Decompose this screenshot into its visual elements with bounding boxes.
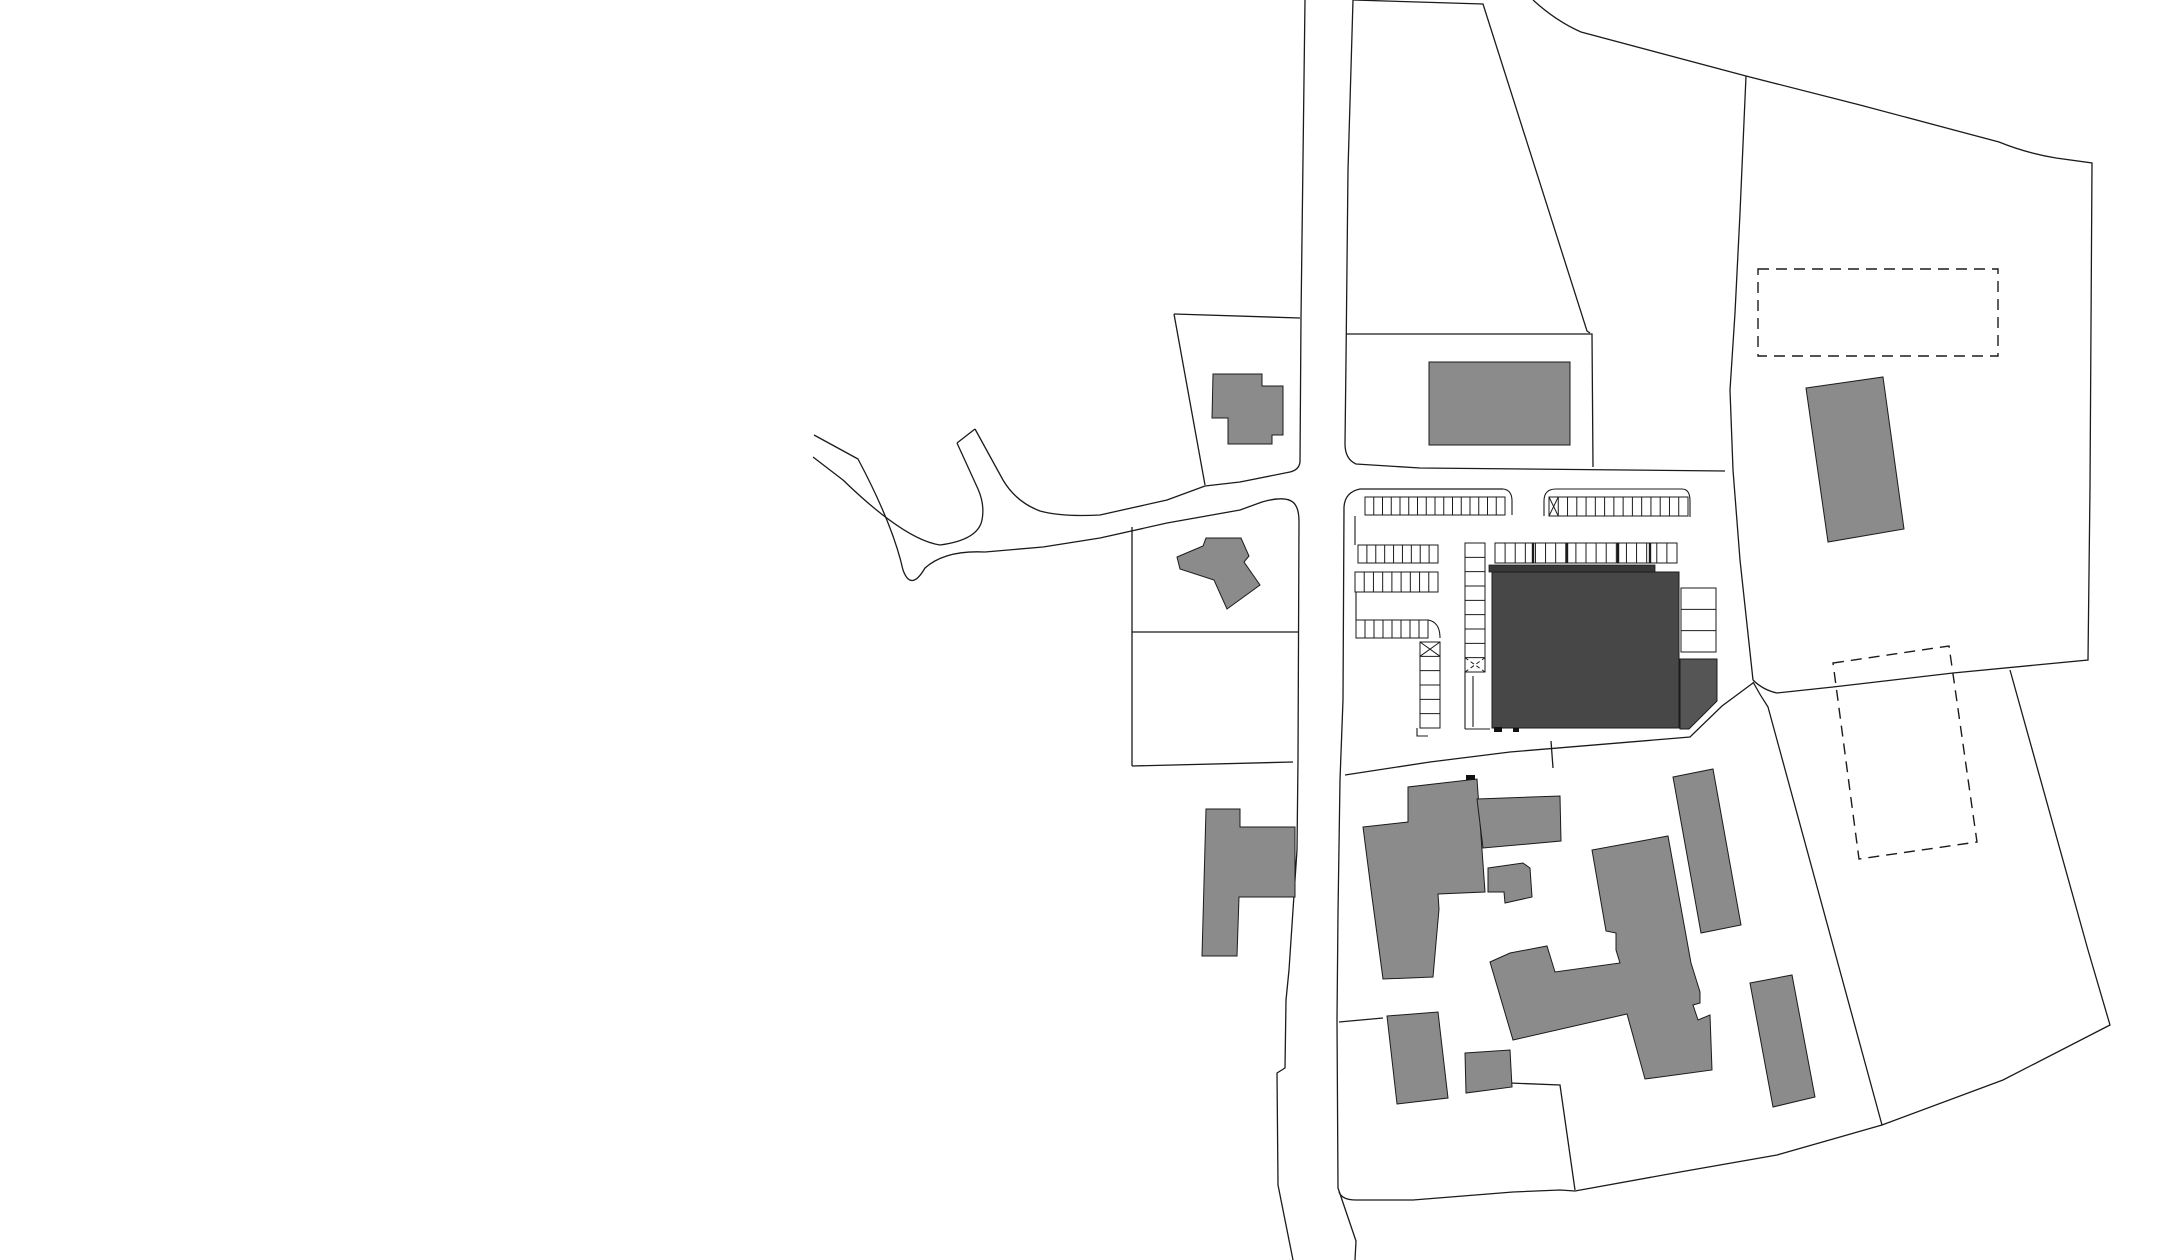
stall-row-west-3 — [1355, 572, 1438, 592]
layer-project-building — [1466, 565, 1717, 780]
project-building-roofband — [1489, 565, 1655, 572]
entrance-mark-1 — [1494, 727, 1502, 732]
parcel-northwest-top — [1174, 314, 1300, 318]
existing-building-northeast-slanted — [1806, 377, 1904, 542]
parking-lot2-outline — [1544, 489, 1690, 517]
stall-row-west-2 — [1358, 545, 1438, 563]
site-plan-svg — [0, 0, 2182, 1260]
existing-building-tall-east — [1673, 769, 1741, 933]
boundary-west-longline — [1730, 76, 1753, 680]
stall-col-middle-outline — [1465, 543, 1485, 672]
parking-row4-corner — [1428, 620, 1440, 638]
site-plan-canvas — [0, 0, 2182, 1260]
stall-row-northeast-outline — [1549, 497, 1688, 516]
stall-row-west-3-outline — [1355, 572, 1438, 592]
project-building-body — [1492, 572, 1679, 728]
existing-building-north-small — [1212, 374, 1283, 444]
entrance-mark-3 — [1466, 775, 1475, 780]
parking-lot1-right-corner — [1503, 489, 1512, 515]
boundary-south-loop — [1339, 670, 2110, 1200]
parking-col-west-foot — [1417, 728, 1428, 736]
parcel-spur-mid — [1551, 741, 1553, 768]
existing-building-cluster-wing — [1477, 796, 1561, 848]
road-branch-inner-edge — [813, 443, 983, 545]
stall-row-at-building — [1495, 543, 1677, 563]
existing-building-north-rect — [1429, 362, 1570, 445]
boundary-node-east — [1753, 680, 1777, 693]
stall-row-west-2-outline — [1358, 545, 1438, 563]
planned-outline-north — [1758, 269, 1998, 356]
stall-row-northeast — [1549, 497, 1688, 516]
project-building-annex — [1680, 659, 1717, 729]
stall-row-west-4 — [1356, 620, 1428, 638]
existing-building-cluster-a — [1363, 779, 1485, 979]
parking-lot1-inner-edge — [1355, 516, 1356, 620]
entrance-mark-2 — [1513, 728, 1519, 732]
parcel-northwest-west — [1174, 314, 1205, 485]
road-stub-endcap — [957, 429, 975, 443]
parcel-mid-bottom — [1132, 762, 1293, 766]
existing-building-south-2 — [1465, 1050, 1512, 1093]
existing-building-west-rotated — [1177, 538, 1260, 609]
existing-building-south-1 — [1387, 1012, 1448, 1104]
stall-col-middle — [1465, 543, 1485, 672]
parking-corridor — [1465, 672, 1490, 729]
stall-col-east-of-building — [1681, 588, 1716, 652]
parcel-spur-south — [1510, 1083, 1575, 1190]
parcel-south-inner — [1339, 1018, 1383, 1022]
layer-dashed-outlines — [1758, 269, 1998, 859]
existing-building-cluster-square — [1488, 863, 1532, 903]
stall-col-west — [1420, 642, 1440, 728]
stall-row-northwest — [1365, 497, 1505, 515]
existing-building-south-3 — [1750, 975, 1815, 1107]
stall-col-east-of-building-outline — [1681, 588, 1716, 652]
existing-building-west-tshape — [1202, 809, 1295, 956]
parcel-trapezoid-north — [1353, 0, 1590, 333]
